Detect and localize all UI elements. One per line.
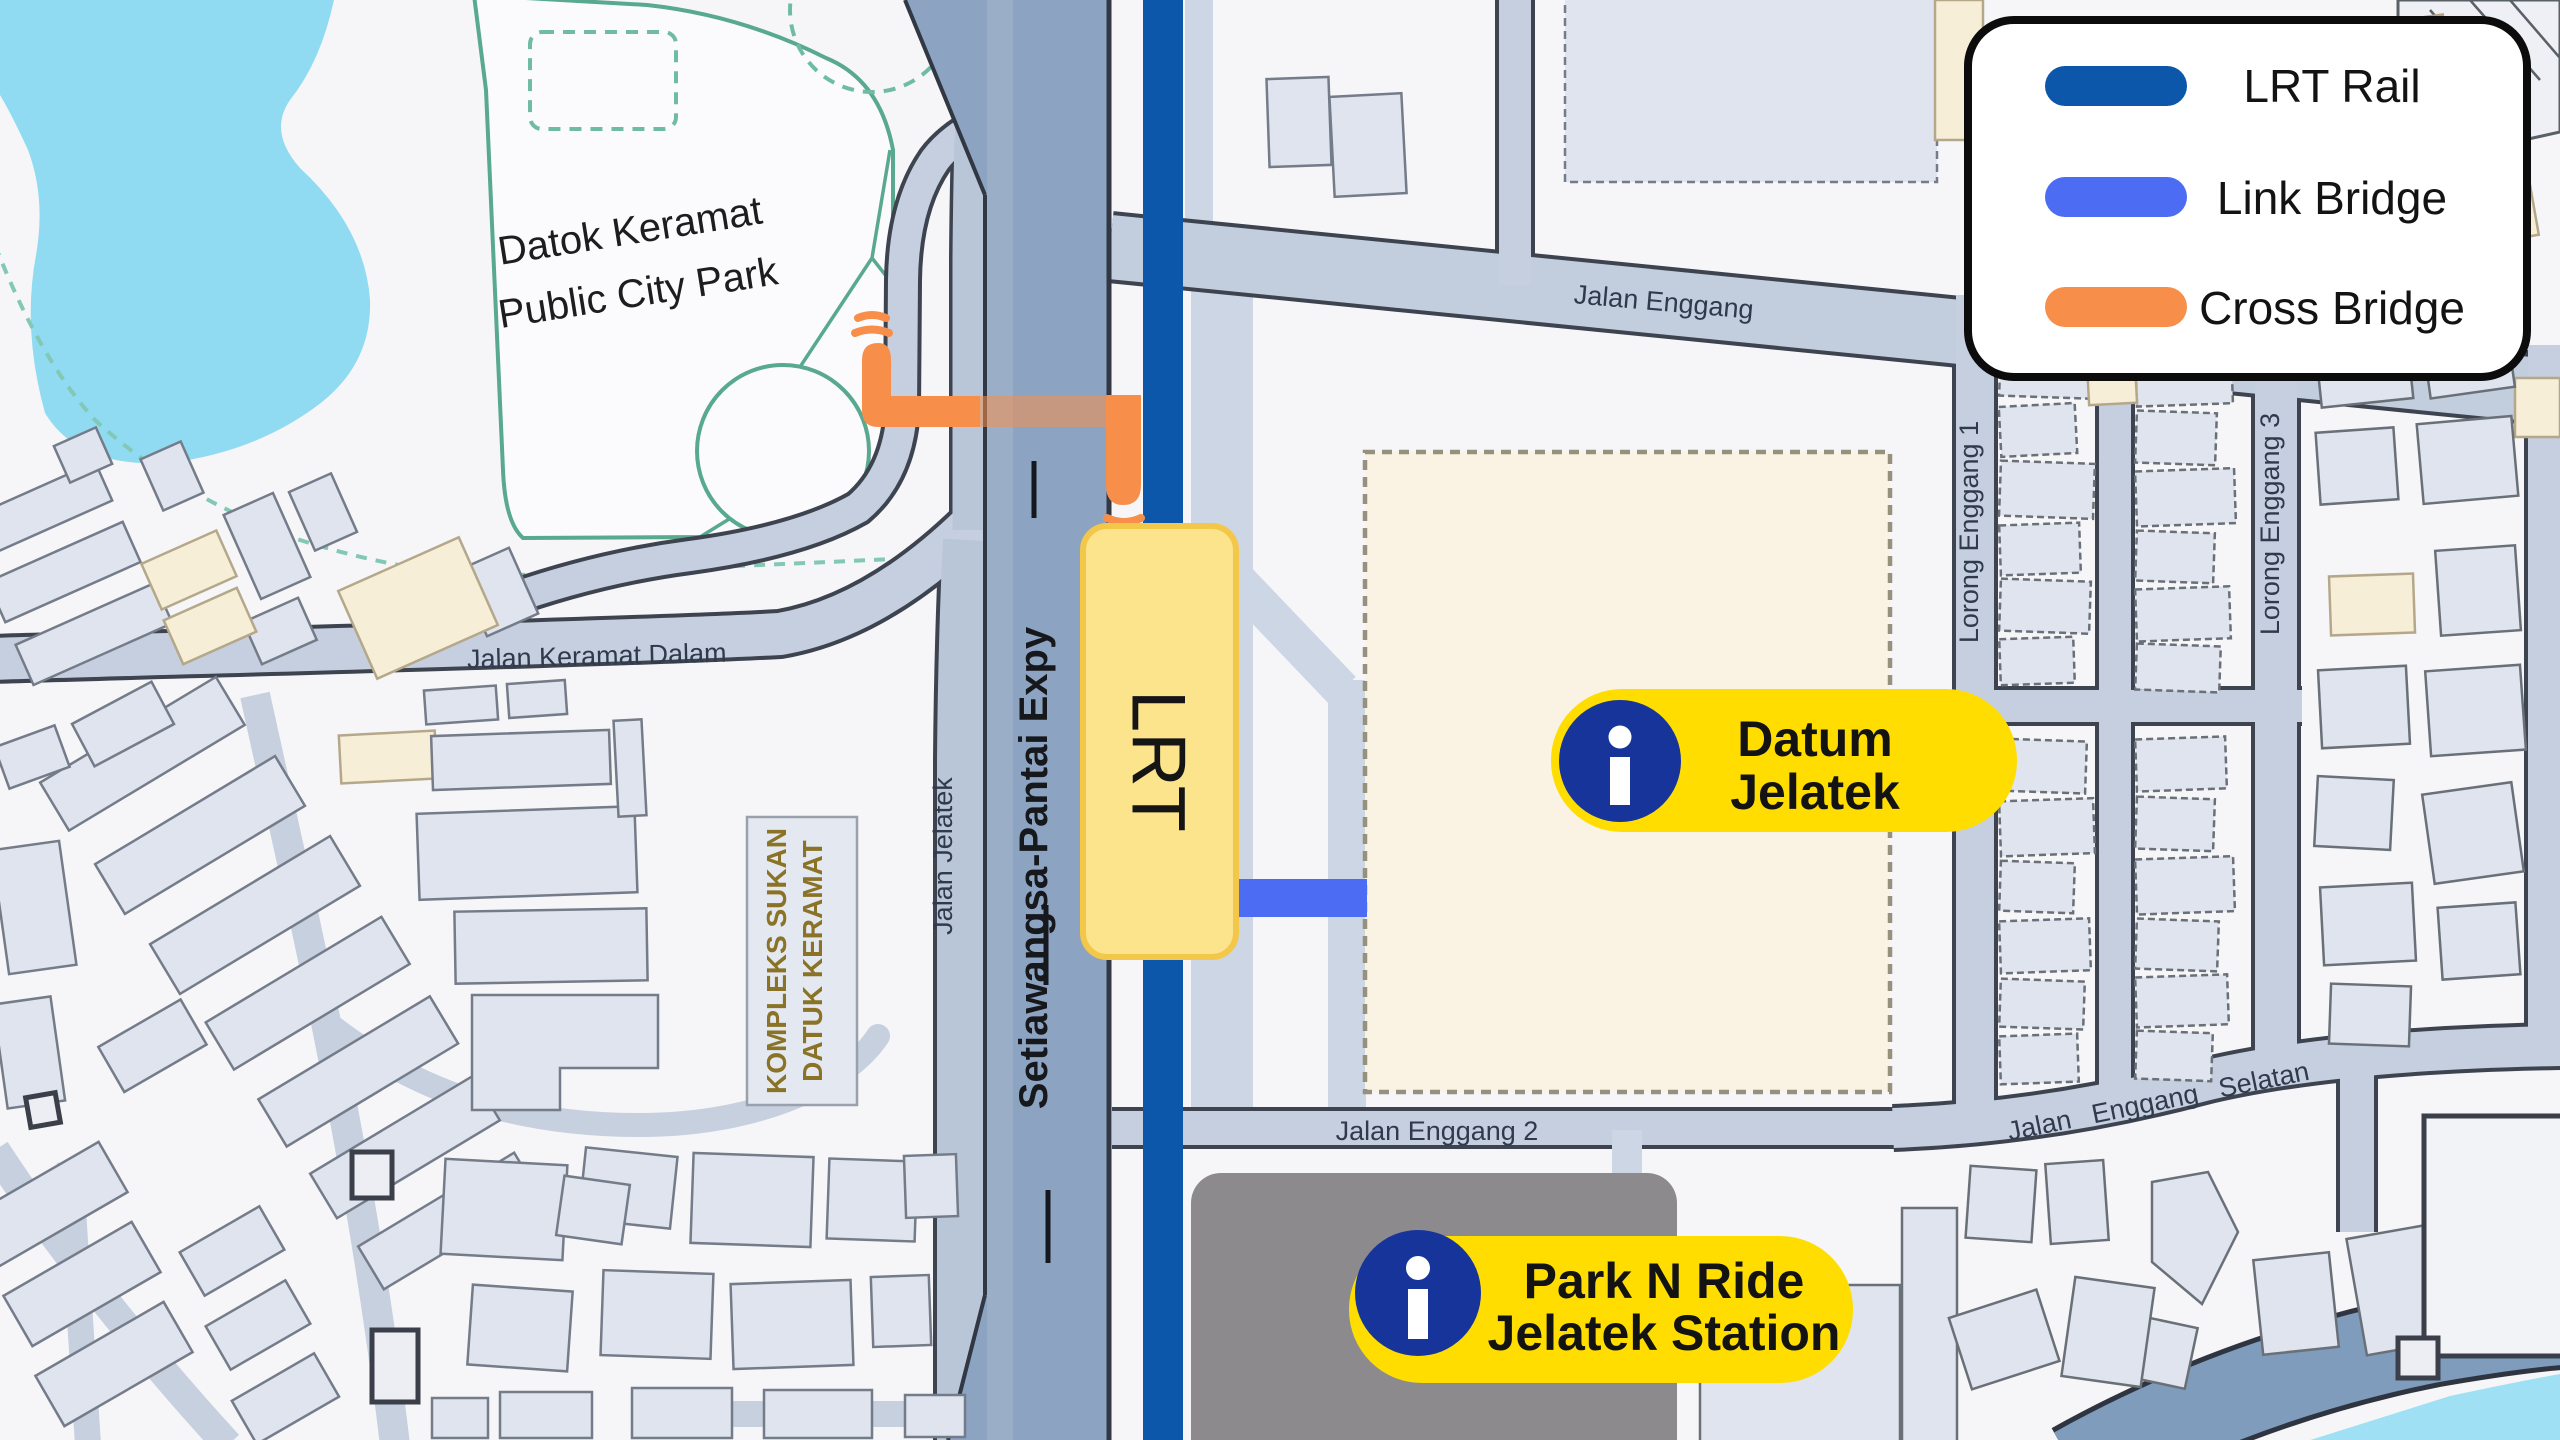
svg-text:Lorong Enggang 3: Lorong Enggang 3 xyxy=(2255,413,2285,635)
svg-text:Link Bridge: Link Bridge xyxy=(2217,172,2447,224)
svg-text:Datum: Datum xyxy=(1737,711,1893,767)
svg-text:Park N Ride: Park N Ride xyxy=(1524,1253,1805,1309)
svg-text:Jelatek Station: Jelatek Station xyxy=(1488,1305,1841,1361)
svg-text:LRT: LRT xyxy=(1116,690,1201,832)
svg-text:KOMPLEKS SUKAN: KOMPLEKS SUKAN xyxy=(761,828,792,1094)
svg-text:Jelatek: Jelatek xyxy=(1730,764,1900,820)
svg-text:Setiawangsa-Pantai Expy: Setiawangsa-Pantai Expy xyxy=(1012,626,1056,1109)
svg-text:DATUK KERAMAT: DATUK KERAMAT xyxy=(797,840,828,1082)
svg-text:Jalan Jelatek: Jalan Jelatek xyxy=(928,777,958,935)
svg-text:Lorong Enggang 1: Lorong Enggang 1 xyxy=(1954,421,1984,643)
svg-text:Jalan Enggang 2: Jalan Enggang 2 xyxy=(1336,1116,1539,1146)
svg-text:LRT Rail: LRT Rail xyxy=(2243,60,2420,112)
svg-text:Cross Bridge: Cross Bridge xyxy=(2199,282,2465,334)
